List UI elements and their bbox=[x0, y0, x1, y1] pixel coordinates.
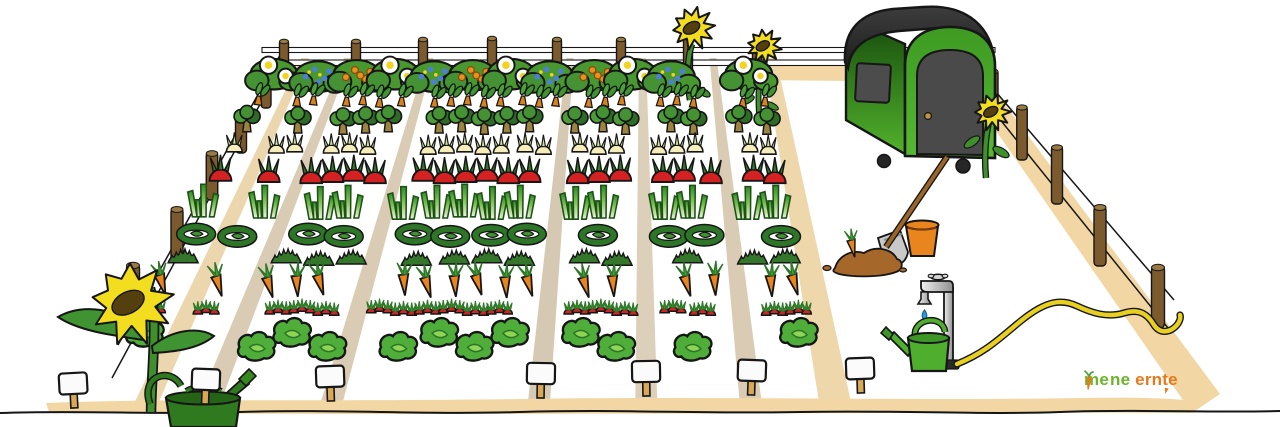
spinach-icon bbox=[395, 223, 434, 245]
spinach-icon bbox=[431, 226, 470, 248]
radishes-icon bbox=[463, 301, 489, 315]
onions-icon bbox=[323, 134, 339, 154]
beetroot-icon bbox=[497, 157, 519, 183]
broccoli-icon bbox=[426, 107, 452, 133]
radishes-icon bbox=[564, 300, 590, 314]
spinach-icon bbox=[507, 223, 546, 245]
beetroot-icon bbox=[455, 156, 477, 182]
caravan-wheel-icon bbox=[878, 155, 891, 168]
beetroot-icon bbox=[322, 156, 344, 182]
herbs-icon bbox=[673, 249, 703, 263]
herbs-icon bbox=[336, 250, 366, 264]
broccoli-icon bbox=[285, 107, 311, 133]
carrots-icon bbox=[416, 263, 434, 299]
fence-post-icon bbox=[1094, 205, 1106, 267]
lettuce-icon bbox=[491, 318, 528, 347]
beetroot-icon bbox=[567, 157, 589, 183]
watering-can-right-icon bbox=[881, 320, 949, 371]
spinach-icon bbox=[289, 223, 328, 245]
broccoli-icon bbox=[517, 105, 543, 131]
beetroot-icon bbox=[434, 157, 456, 183]
spinach-icon bbox=[578, 224, 617, 246]
carrots-icon bbox=[602, 261, 621, 297]
broccoli-icon bbox=[353, 107, 379, 133]
leeks-icon bbox=[449, 184, 480, 217]
leeks-icon bbox=[249, 185, 280, 218]
herbs-icon bbox=[570, 249, 600, 263]
beetroot-icon bbox=[743, 155, 765, 181]
lettuce-icon bbox=[674, 332, 711, 361]
radishes-icon bbox=[391, 301, 417, 315]
leeks-icon bbox=[477, 187, 508, 220]
broccoli-icon bbox=[494, 107, 520, 133]
lettuce-icon bbox=[380, 332, 417, 361]
beetroot-icon bbox=[652, 156, 674, 182]
onions-icon bbox=[493, 134, 509, 154]
leeks-icon bbox=[421, 185, 452, 218]
beetroot-icon bbox=[364, 157, 386, 183]
broccoli-icon bbox=[375, 105, 401, 131]
radishes-icon bbox=[439, 299, 465, 313]
radishes-icon bbox=[415, 300, 441, 314]
lettuce-icon bbox=[273, 318, 310, 347]
door-knob-icon bbox=[925, 113, 932, 120]
onions-icon bbox=[609, 134, 625, 154]
carrots-icon bbox=[518, 262, 536, 298]
beetroot-icon bbox=[343, 155, 365, 181]
garden-illustration: mene ernte bbox=[0, 0, 1280, 427]
onions-icon bbox=[572, 132, 588, 152]
lettuce-icon bbox=[562, 318, 599, 347]
onions-icon bbox=[590, 135, 606, 155]
spinach-icon bbox=[177, 223, 216, 245]
onions-icon bbox=[360, 135, 376, 155]
onions-icon bbox=[517, 132, 533, 152]
carrots-icon bbox=[444, 261, 463, 297]
beetroot-icon bbox=[673, 155, 695, 181]
onions-icon bbox=[651, 135, 667, 155]
onions-icon bbox=[475, 135, 491, 155]
onions-icon bbox=[420, 135, 436, 155]
leeks-icon bbox=[504, 185, 535, 218]
leeks-icon bbox=[304, 187, 335, 220]
leeks-icon bbox=[560, 187, 591, 220]
carrots-icon bbox=[467, 260, 485, 296]
radishes-icon bbox=[612, 301, 638, 315]
logo-letter-e: e bbox=[1168, 370, 1178, 389]
radishes-icon bbox=[660, 299, 686, 313]
radishes-icon bbox=[367, 299, 393, 313]
leeks-icon bbox=[332, 185, 363, 218]
onions-icon bbox=[287, 132, 303, 152]
caravan bbox=[845, 7, 995, 173]
onions-icon bbox=[457, 132, 473, 152]
broccoli-icon bbox=[681, 108, 707, 134]
carrots-icon bbox=[495, 262, 514, 298]
lettuce-icon bbox=[598, 332, 635, 361]
herbs-icon bbox=[304, 251, 334, 265]
spinach-icon bbox=[472, 224, 511, 246]
lettuce-icon bbox=[421, 318, 458, 347]
onions-icon bbox=[742, 132, 758, 152]
onions-icon bbox=[536, 135, 552, 155]
onions-icon bbox=[687, 132, 703, 152]
leeks-icon bbox=[649, 187, 680, 220]
herbs-icon bbox=[472, 249, 502, 263]
herbs-icon bbox=[504, 251, 534, 265]
onions-icon bbox=[439, 134, 455, 154]
herbs-icon bbox=[602, 251, 632, 265]
radishes-icon bbox=[265, 300, 291, 314]
beetroot-icon bbox=[476, 155, 498, 181]
bucket-icon bbox=[906, 221, 939, 257]
lettuce-icon bbox=[238, 332, 275, 361]
spinach-icon bbox=[762, 226, 801, 248]
brand-logo: mene ernte bbox=[1084, 370, 1178, 390]
spinach-icon bbox=[685, 224, 724, 246]
scene-svg bbox=[0, 0, 1280, 427]
lettuce-icon bbox=[309, 332, 346, 361]
carrots-icon bbox=[574, 263, 592, 299]
broccoli-icon bbox=[726, 105, 752, 131]
herbs-icon bbox=[738, 250, 768, 264]
herbs-icon bbox=[439, 250, 469, 264]
caravan-window bbox=[855, 63, 891, 103]
bed-sign bbox=[846, 358, 875, 394]
logo-word-ern: ern bbox=[1135, 370, 1162, 389]
onions-icon bbox=[342, 132, 358, 152]
radishes-icon bbox=[690, 301, 716, 315]
beetroot-icon bbox=[609, 155, 631, 181]
broccoli-icon bbox=[330, 108, 356, 134]
beetroot-icon bbox=[519, 156, 541, 182]
radishes-icon bbox=[313, 301, 339, 315]
logo-word-ne: ne bbox=[1110, 370, 1130, 389]
radishes-icon bbox=[487, 300, 513, 314]
beetroot-icon bbox=[412, 155, 434, 181]
lettuce-icon bbox=[456, 332, 493, 361]
spinach-icon bbox=[324, 226, 363, 248]
onions-icon bbox=[760, 135, 776, 155]
leeks-icon bbox=[588, 185, 619, 218]
leeks-icon bbox=[677, 185, 708, 218]
caravan-wheel-icon bbox=[956, 159, 970, 173]
carrots-icon bbox=[704, 260, 723, 296]
radishes-icon bbox=[289, 299, 315, 313]
logo-letter-t: t bbox=[1162, 370, 1168, 390]
leeks-icon bbox=[732, 187, 763, 220]
lettuce-icon bbox=[780, 318, 817, 347]
fence-post-icon bbox=[1017, 105, 1028, 160]
radishes-icon bbox=[588, 299, 614, 313]
radishes-icon bbox=[762, 301, 788, 315]
beetroot-icon bbox=[588, 156, 610, 182]
broccoli-icon bbox=[613, 108, 639, 134]
carrots-icon bbox=[760, 261, 779, 297]
carrots-icon bbox=[676, 262, 694, 298]
broccoli-icon bbox=[471, 108, 497, 134]
spinach-icon bbox=[649, 226, 688, 248]
onions-icon bbox=[669, 134, 685, 154]
spinach-icon bbox=[218, 226, 257, 248]
carrots-icon bbox=[286, 261, 305, 297]
fence-post-icon bbox=[1052, 145, 1063, 204]
